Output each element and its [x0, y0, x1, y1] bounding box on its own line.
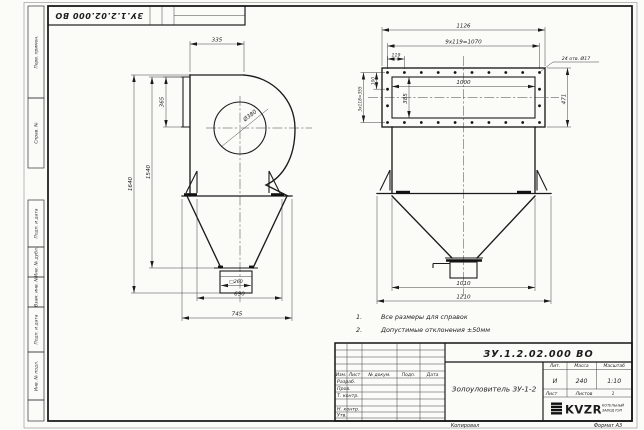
dim-edge-offset-text: 100	[370, 77, 376, 85]
side-hopper-outline	[377, 127, 551, 278]
margin-label-inv-dubl: Инв. № дубл.	[34, 247, 40, 277]
note-1-number: 1.	[356, 313, 362, 321]
format-label: Формат А3	[594, 423, 622, 429]
dim-body-height: 1540	[146, 77, 214, 268]
margin-label-podp-data-2: Подп. и дата	[34, 314, 40, 344]
scale-value: 1:10	[607, 378, 621, 385]
dim-hopper-overall-width: 1210	[377, 196, 551, 304]
row-label-tkontr: Т. контр.	[337, 393, 359, 399]
holes-callout: 24 отв. Ø17	[541, 55, 600, 72]
margin-label-podp-data-1: Подп. и дата	[34, 208, 40, 238]
drawing-sheet: Перв. примен. Справ. № Подп. и дата Инв.…	[0, 0, 644, 430]
dim-inlet-width-text: 335	[212, 38, 223, 44]
cyclone-scroll-outline	[181, 75, 295, 196]
dim-flange-height: 365	[160, 77, 184, 127]
dim-overall-height-text: 1640	[128, 176, 134, 191]
note-2-number: 2.	[356, 326, 362, 334]
copied-label: Копировал	[451, 423, 480, 429]
logo-sub-line1: КОТЕЛЬНЫЙ	[602, 403, 624, 408]
margin-label-vzam-inv: Взам. инв. №	[34, 277, 40, 307]
dim-flange-height-text: 365	[160, 96, 166, 107]
lit-value: И	[553, 378, 558, 385]
slide-gate-handle	[433, 264, 450, 269]
dim-overall-width: 745	[182, 199, 292, 321]
dim-scroll-diameter-text: Ø380	[241, 108, 258, 124]
title-doc-number: ЗУ.1.2.02.000 ВО	[483, 349, 593, 360]
engineering-drawing-canvas: Перв. примен. Справ. № Подп. и дата Инв.…	[0, 0, 644, 430]
dim-inner-width: 1000	[392, 80, 535, 87]
margin-label-perv-primen: Перв. примен.	[34, 36, 40, 69]
col-header-list: Лист	[348, 372, 361, 378]
holes-callout-text: 24 отв. Ø17	[562, 55, 590, 62]
note-2-text: Допустимые отклонения ±50мм	[380, 326, 490, 334]
col-header-podp: Подп.	[402, 372, 416, 378]
dim-outlet-square: □260	[221, 279, 251, 286]
sheets-label: Листов	[575, 391, 593, 397]
kvzr-logo-icon	[551, 403, 562, 415]
logo-text: KVZR	[565, 403, 602, 417]
dim-hole-pitch: 119	[388, 53, 405, 70]
dim-side-hole-spacing-text: 3x118=355	[357, 86, 363, 112]
margin-label-inv-podl: Инв. № подл.	[34, 361, 40, 391]
title-block: ЗУ.1.2.02.000 ВО Золоуловитель ЗУ-1-2 Из…	[335, 343, 632, 421]
dim-hopper-width-text: 690	[234, 292, 245, 298]
top-stamp: ЗУ.1.2.02.000 ВО	[48, 6, 245, 25]
dim-inlet-width: 335	[190, 38, 244, 73]
dim-hopper-inner-width-text: 1010	[456, 281, 471, 287]
stamp-doc-number: ЗУ.1.2.02.000 ВО	[55, 11, 143, 20]
row-label-nkontr: Н. контр.	[337, 406, 359, 412]
sheet-label: Лист	[545, 391, 558, 397]
mass-value: 240	[576, 378, 588, 385]
note-1-text: Все размеры для справок	[381, 313, 468, 321]
lit-label: Лит.	[549, 363, 560, 369]
dim-inner-width-text: 1000	[456, 80, 471, 86]
margin-column: Перв. примен. Справ. № Подп. и дата Инв.…	[28, 6, 44, 421]
dim-hole-pitch-text: 119	[392, 53, 401, 59]
dim-overall-height: 1640	[128, 75, 220, 293]
notes: 1. Все размеры для справок 2. Допустимые…	[356, 313, 490, 334]
dim-flange-height-side-text: 471	[561, 94, 567, 105]
dim-inner-height-text: 385	[403, 93, 409, 104]
margin-label-sprav-no: Справ. №	[34, 122, 40, 144]
row-label-razrab: Разраб.	[337, 379, 355, 385]
dim-inner-height: 385	[403, 77, 409, 118]
kvzr-logo: KVZR КОТЕЛЬНЫЙ ЗАВОД РЭП	[551, 403, 624, 417]
dim-hole-spacing-text: 9x119=1070	[445, 40, 482, 46]
dim-edge-offset: 100	[370, 73, 385, 90]
col-header-dokum: № докум.	[367, 372, 390, 378]
dim-scroll-diameter: Ø380	[221, 108, 268, 147]
mass-label: Масса	[574, 363, 589, 369]
dim-overall-width-text: 745	[232, 312, 243, 318]
sheets-value: 1	[612, 391, 615, 397]
row-label-prov: Пров.	[337, 386, 351, 392]
row-label-utv: Утв.	[337, 412, 347, 418]
scale-label: Масштаб	[604, 363, 626, 369]
logo-sub-line2: ЗАВОД РЭП	[602, 409, 623, 413]
product-name: Золоуловитель ЗУ-1-2	[452, 385, 537, 394]
front-view: 335 365 Ø380 1540 1640 □260 690	[128, 38, 312, 322]
dim-body-height-text: 1540	[146, 164, 152, 179]
side-view: 1126 9x119=1070 119 24 отв. Ø17 471 3x11…	[357, 24, 599, 305]
sheet-frame	[24, 3, 637, 429]
dim-outlet-square-text: □260	[229, 279, 242, 285]
dim-side-overall-width-text: 1126	[456, 24, 471, 30]
col-header-izm: Изм.	[336, 372, 347, 378]
col-header-data: Дата	[426, 372, 439, 378]
dim-hopper-overall-width-text: 1210	[456, 295, 471, 301]
